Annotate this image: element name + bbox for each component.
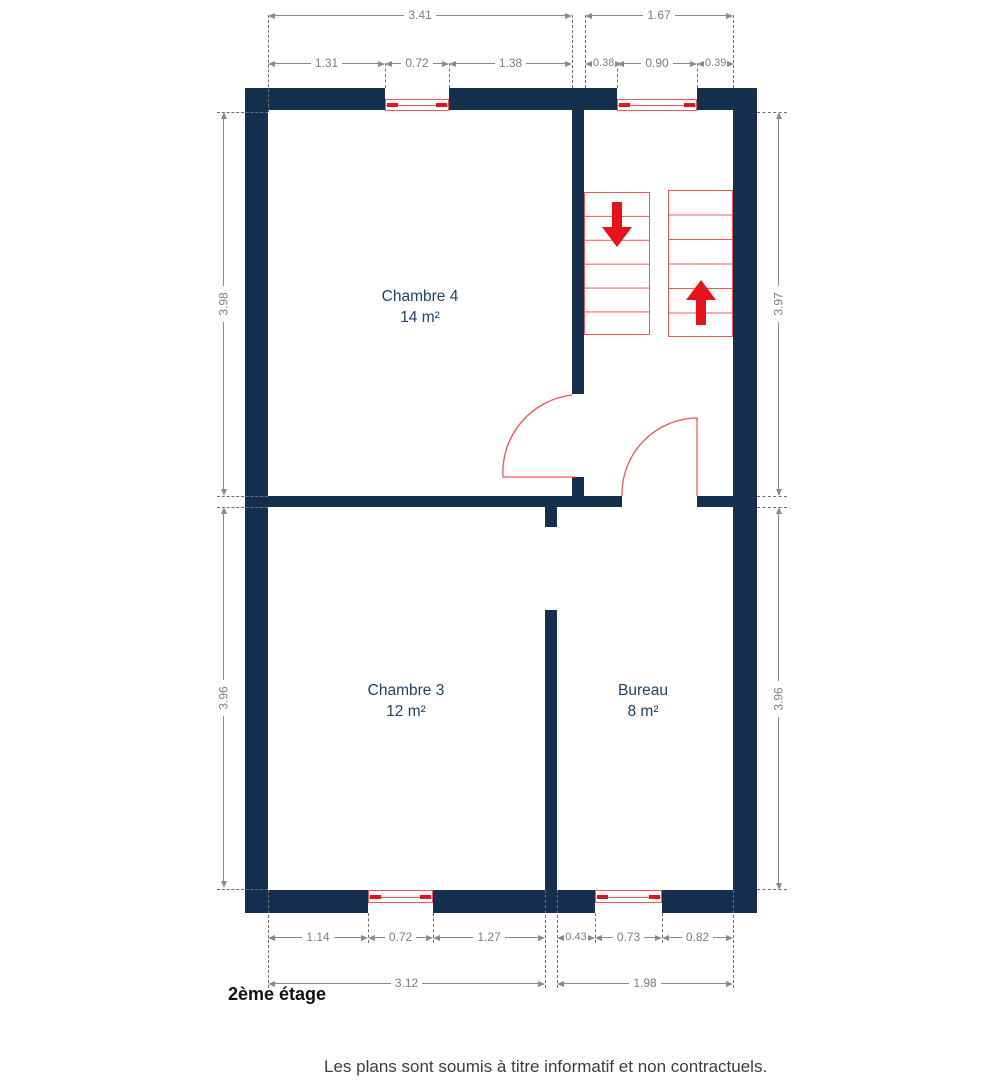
dim-value: 1.98 [629, 977, 660, 990]
wall-right [733, 88, 757, 913]
dim-value: 3.98 [217, 290, 231, 317]
dim-value: 0.90 [641, 57, 672, 70]
dim-top-total-right: 1.67 [585, 9, 733, 22]
stairs-down-arrow-icon [612, 202, 622, 228]
wall-interior-door-stub [572, 477, 584, 497]
dim-value: 3.41 [404, 9, 435, 22]
dim-bottom-seg-3: 1.27 [433, 931, 545, 944]
dim-value: 1.31 [311, 57, 342, 70]
dim-value: 0.82 [682, 931, 713, 944]
wall-bottom-segment-2 [433, 890, 595, 913]
dim-right-upper: 3.97 [772, 112, 785, 496]
room-area: 12 m² [326, 701, 486, 722]
extension-line [572, 15, 573, 88]
floor-label: 2ème étage [228, 984, 326, 1005]
dim-left-lower: 3.96 [217, 507, 230, 888]
dim-value: 1.38 [495, 57, 526, 70]
dim-value: 0.39 [704, 57, 727, 70]
floor-plan: Chambre 4 14 m² Chambre 3 12 m² Bureau 8… [0, 0, 1002, 1080]
dim-value: 3.12 [391, 977, 422, 990]
window-frame-tick [420, 895, 431, 899]
dim-top-seg-5: 0.90 [617, 57, 697, 70]
extension-line [217, 889, 268, 890]
room-area: 8 m² [563, 701, 723, 722]
door-arc-chambre4 [503, 395, 575, 477]
dim-left-upper: 3.98 [217, 112, 230, 496]
window-frame-tick [597, 895, 608, 899]
window-bottom-left [368, 890, 433, 903]
wall-bottom-segment-1 [245, 890, 368, 913]
extension-line [585, 15, 586, 88]
room-name: Chambre 3 [326, 680, 486, 701]
dim-value: 1.14 [302, 931, 333, 944]
dim-bottom-seg-6: 0.82 [662, 931, 733, 944]
window-top-left [385, 99, 449, 111]
extension-line [545, 890, 546, 988]
window-frame-tick [684, 103, 695, 107]
dim-top-seg-1: 1.31 [268, 57, 385, 70]
window-frame-tick [436, 103, 447, 107]
extension-line [757, 496, 787, 497]
dim-value: 1.27 [473, 931, 504, 944]
wall-divider-stub [545, 507, 557, 527]
wall-divider [545, 610, 557, 890]
dim-top-seg-2: 0.72 [385, 57, 449, 70]
dim-top-seg-3: 1.38 [449, 57, 572, 70]
wall-bottom-segment-3 [662, 890, 757, 913]
dim-bottom-seg-1: 1.14 [268, 931, 368, 944]
room-name: Chambre 4 [340, 286, 500, 307]
extension-line [733, 15, 734, 88]
room-name: Bureau [563, 680, 723, 701]
disclaimer-text: Les plans sont soumis à titre informatif… [324, 1057, 767, 1077]
dim-value: 3.96 [217, 684, 231, 711]
stairs-up-arrowhead-icon [686, 280, 716, 300]
door-arc-bureau [622, 418, 697, 496]
wall-interior-stairwell [572, 110, 584, 394]
dim-value: 3.97 [772, 290, 786, 317]
window-frame-tick [387, 103, 398, 107]
room-label-chambre4: Chambre 4 14 m² [340, 286, 500, 328]
dim-value: 0.43 [564, 931, 587, 944]
room-area: 14 m² [340, 307, 500, 328]
window-bottom-right [595, 890, 662, 903]
dim-value: 1.67 [643, 9, 674, 22]
dim-top-seg-6: 0.39 [697, 57, 733, 70]
extension-line [733, 890, 734, 988]
dim-value: 0.38 [592, 57, 615, 70]
dim-value: 0.72 [385, 931, 416, 944]
room-label-chambre3: Chambre 3 12 m² [326, 680, 486, 722]
dim-bottom-seg-4: 0.43 [557, 931, 595, 944]
wall-middle-segment-1 [268, 496, 622, 507]
dim-bottom-seg-5: 0.73 [595, 931, 662, 944]
window-top-right [617, 99, 697, 111]
wall-middle-segment-2 [697, 496, 733, 507]
wall-top-segment-2 [449, 88, 617, 110]
dim-value: 0.73 [613, 931, 644, 944]
stairs-up-arrow-icon [696, 299, 706, 325]
dim-top-total-left: 3.41 [268, 9, 572, 22]
dim-bottom-seg-2: 0.72 [368, 931, 433, 944]
wall-left [245, 88, 268, 913]
window-frame-tick [370, 895, 381, 899]
stairs-down-arrowhead-icon [602, 227, 632, 247]
extension-line [217, 496, 268, 497]
dim-top-seg-4: 0.38 [585, 57, 617, 70]
door-arcs [0, 0, 1002, 1080]
dim-value: 3.96 [772, 685, 786, 712]
dim-bottom-total-right: 1.98 [557, 977, 733, 990]
room-label-bureau: Bureau 8 m² [563, 680, 723, 722]
dim-value: 0.72 [401, 57, 432, 70]
dim-right-lower: 3.96 [772, 507, 785, 890]
window-frame-tick [649, 895, 660, 899]
window-frame-tick [619, 103, 630, 107]
